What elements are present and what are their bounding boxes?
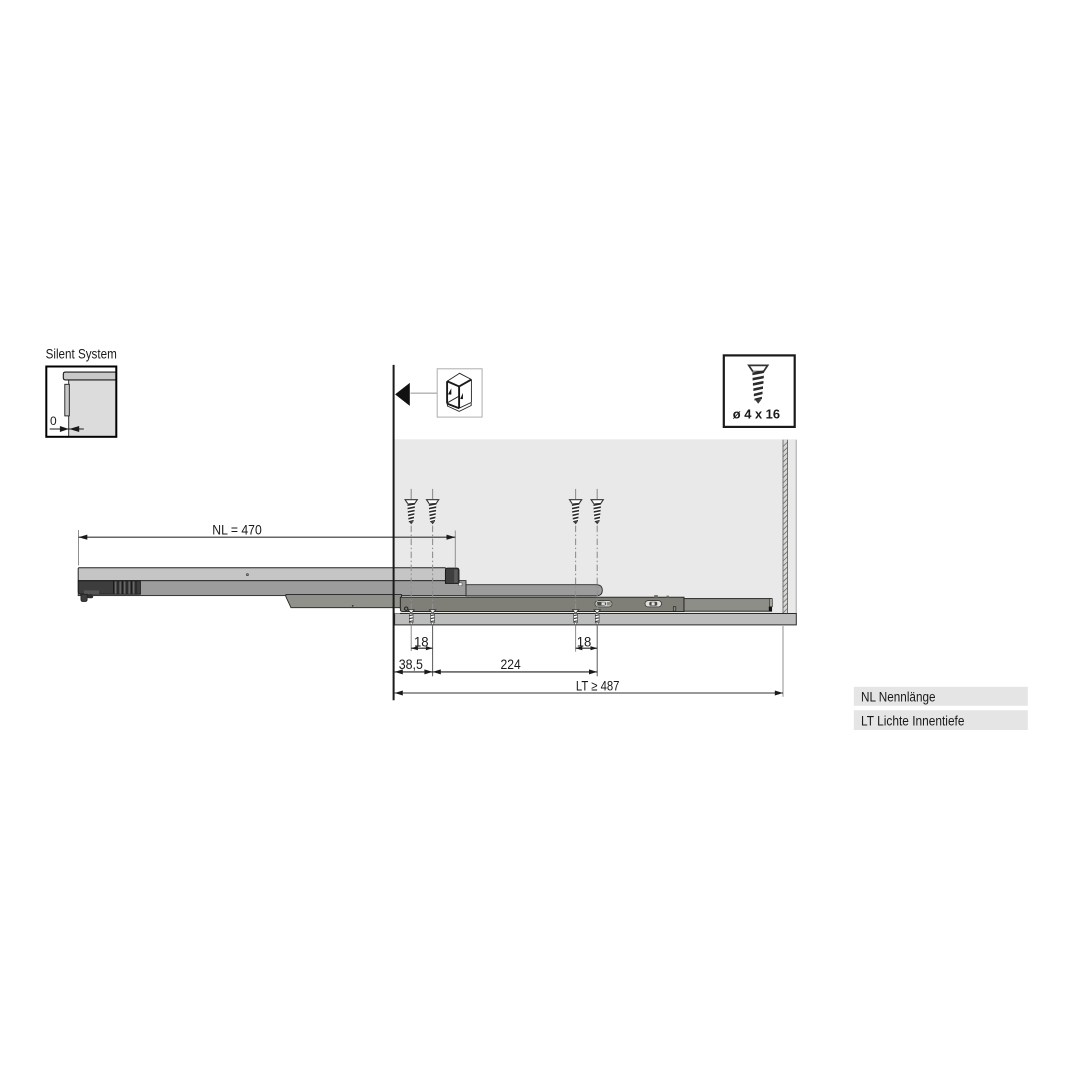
svg-text:Silent System: Silent System xyxy=(46,346,117,361)
svg-text:LT ≥ 487: LT ≥ 487 xyxy=(576,678,620,693)
svg-text:NL = 470: NL = 470 xyxy=(212,522,262,537)
svg-text:LT Lichte Innentiefe: LT Lichte Innentiefe xyxy=(861,713,965,728)
svg-text:18: 18 xyxy=(414,634,429,649)
svg-text:18: 18 xyxy=(577,634,592,649)
svg-text:ø 4 x 16: ø 4 x 16 xyxy=(733,406,780,421)
svg-text:38,5: 38,5 xyxy=(399,657,423,672)
svg-text:NL Nennlänge: NL Nennlänge xyxy=(861,690,936,705)
svg-text:0: 0 xyxy=(50,414,57,428)
svg-text:224: 224 xyxy=(501,657,521,672)
